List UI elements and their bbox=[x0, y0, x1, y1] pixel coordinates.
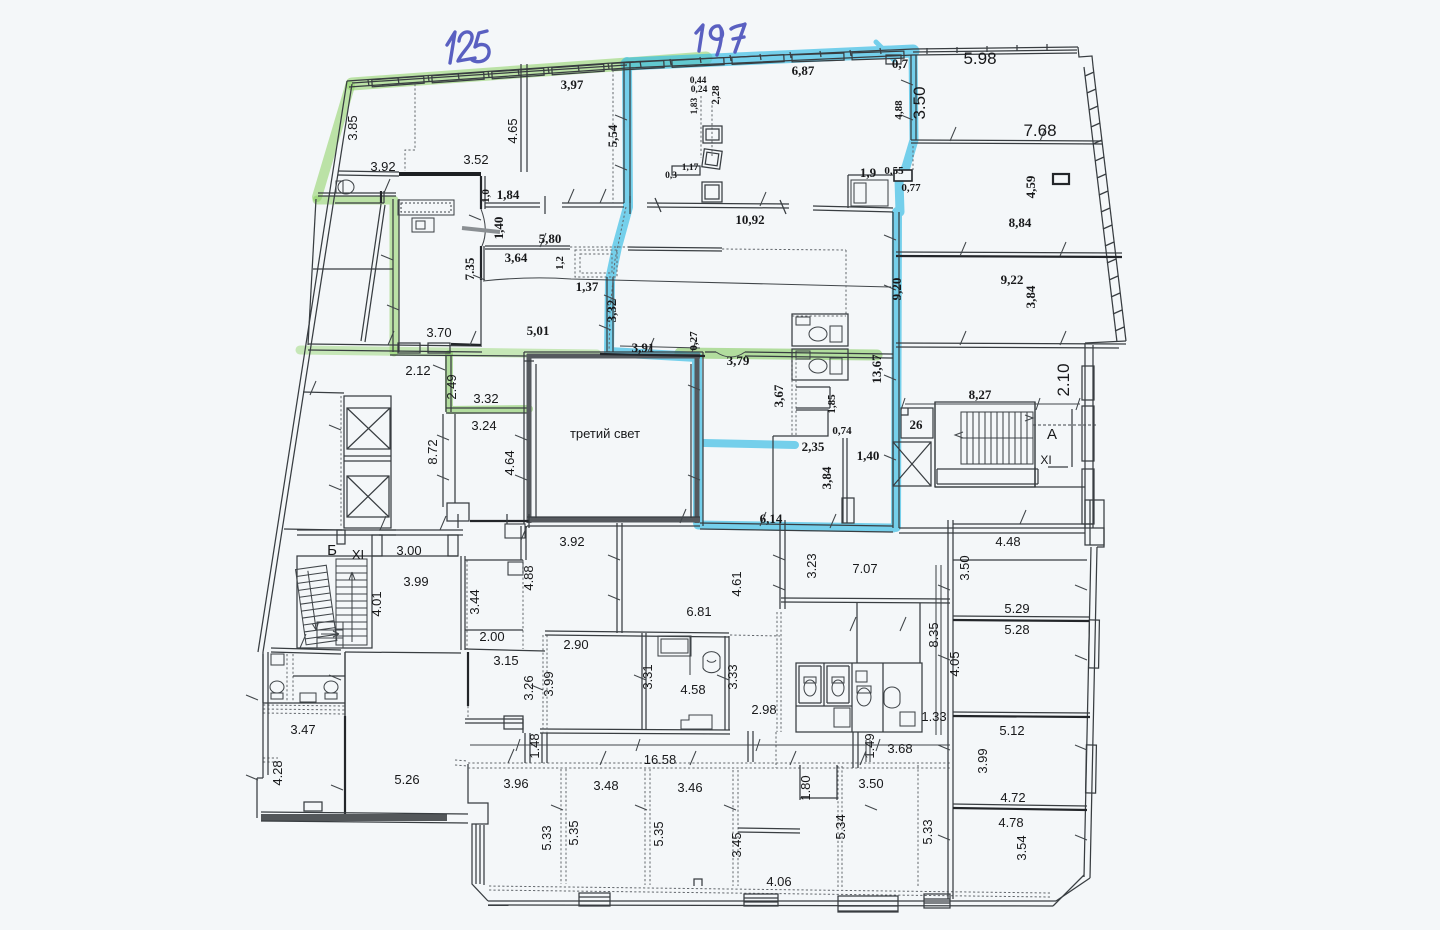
svg-text:5,01: 5,01 bbox=[527, 323, 550, 338]
svg-text:8.35: 8.35 bbox=[926, 622, 941, 647]
svg-text:3,67: 3,67 bbox=[771, 384, 786, 407]
svg-text:0,7: 0,7 bbox=[892, 56, 909, 71]
svg-text:3.85: 3.85 bbox=[345, 115, 360, 140]
svg-text:4,59: 4,59 bbox=[1023, 175, 1038, 198]
svg-text:А: А bbox=[1047, 426, 1057, 443]
svg-text:4.28: 4.28 bbox=[270, 760, 285, 785]
svg-text:2.12: 2.12 bbox=[405, 363, 430, 378]
svg-text:4.88: 4.88 bbox=[521, 565, 536, 590]
svg-text:1,84: 1,84 bbox=[497, 187, 520, 202]
svg-text:5.33: 5.33 bbox=[920, 819, 935, 844]
svg-text:8.72: 8.72 bbox=[425, 439, 440, 464]
svg-text:0,74: 0,74 bbox=[832, 425, 852, 437]
svg-text:1,9: 1,9 bbox=[860, 165, 877, 180]
svg-text:XI: XI bbox=[352, 547, 364, 562]
svg-text:3.26: 3.26 bbox=[521, 675, 536, 700]
svg-text:5.29: 5.29 bbox=[1004, 601, 1029, 616]
svg-text:26: 26 bbox=[910, 417, 924, 432]
svg-text:4,88: 4,88 bbox=[893, 100, 905, 120]
svg-text:3.50: 3.50 bbox=[957, 555, 972, 580]
svg-text:1,83: 1,83 bbox=[690, 97, 700, 114]
svg-text:7.35: 7.35 bbox=[462, 257, 477, 280]
svg-text:6,87: 6,87 bbox=[792, 63, 815, 78]
svg-text:5.98: 5.98 bbox=[963, 49, 996, 68]
svg-text:4.64: 4.64 bbox=[502, 450, 517, 475]
svg-text:0,3: 0,3 bbox=[665, 171, 677, 181]
svg-text:3.54: 3.54 bbox=[1014, 835, 1029, 860]
svg-text:2.98: 2.98 bbox=[751, 702, 776, 717]
svg-text:3.15: 3.15 bbox=[493, 653, 518, 668]
svg-text:5.34: 5.34 bbox=[833, 814, 848, 839]
svg-text:5,80: 5,80 bbox=[539, 231, 562, 246]
svg-text:7.68: 7.68 bbox=[1023, 121, 1056, 140]
svg-text:1,17: 1,17 bbox=[682, 163, 699, 173]
svg-text:1,40: 1,40 bbox=[857, 448, 880, 463]
svg-text:2,28: 2,28 bbox=[710, 85, 722, 105]
svg-text:1.48: 1.48 bbox=[527, 733, 542, 758]
svg-text:3.31: 3.31 bbox=[640, 664, 655, 689]
svg-text:3,97: 3,97 bbox=[561, 77, 584, 92]
svg-text:3.24: 3.24 bbox=[471, 418, 496, 433]
svg-text:3,64: 3,64 bbox=[505, 250, 528, 265]
svg-text:5.26: 5.26 bbox=[394, 772, 419, 787]
svg-text:4.72: 4.72 bbox=[1000, 790, 1025, 805]
svg-text:9,20: 9,20 bbox=[889, 278, 904, 301]
svg-text:3.00: 3.00 bbox=[396, 543, 421, 558]
svg-text:8,84: 8,84 bbox=[1009, 215, 1032, 230]
svg-text:1,85: 1,85 bbox=[826, 394, 838, 414]
svg-text:3.92: 3.92 bbox=[370, 159, 395, 174]
svg-text:1.80: 1.80 bbox=[798, 775, 813, 800]
svg-text:2.49: 2.49 bbox=[444, 374, 459, 399]
svg-text:1,2: 1,2 bbox=[554, 256, 566, 270]
svg-text:3.92: 3.92 bbox=[559, 534, 584, 549]
svg-text:1.33: 1.33 bbox=[921, 709, 946, 724]
svg-text:4.61: 4.61 bbox=[729, 571, 744, 596]
svg-text:XI: XI bbox=[1040, 453, 1051, 467]
svg-text:3.70: 3.70 bbox=[426, 325, 451, 340]
svg-text:2.10: 2.10 bbox=[1054, 363, 1073, 396]
svg-text:8,27: 8,27 bbox=[969, 387, 992, 402]
svg-text:3.47: 3.47 bbox=[290, 722, 315, 737]
svg-text:6.81: 6.81 bbox=[686, 604, 711, 619]
svg-text:0,55: 0,55 bbox=[884, 165, 904, 177]
svg-text:3.44: 3.44 bbox=[467, 589, 482, 614]
svg-text:3.68: 3.68 bbox=[887, 741, 912, 756]
svg-text:3.96: 3.96 bbox=[503, 776, 528, 791]
svg-text:2,35: 2,35 bbox=[802, 439, 825, 454]
svg-text:9,22: 9,22 bbox=[1001, 272, 1024, 287]
svg-text:3.45: 3.45 bbox=[729, 832, 744, 857]
svg-text:3,84: 3,84 bbox=[819, 466, 834, 489]
svg-text:Б: Б bbox=[327, 542, 337, 559]
svg-text:0,24: 0,24 bbox=[691, 85, 708, 95]
svg-text:третий свет: третий свет bbox=[570, 426, 640, 441]
svg-text:3.50: 3.50 bbox=[910, 86, 929, 119]
svg-text:4.01: 4.01 bbox=[369, 591, 384, 616]
svg-text:0,77: 0,77 bbox=[901, 182, 921, 194]
svg-text:3.99: 3.99 bbox=[975, 748, 990, 773]
svg-text:3.48: 3.48 bbox=[593, 778, 618, 793]
svg-text:1,37: 1,37 bbox=[576, 279, 599, 294]
svg-text:1,40: 1,40 bbox=[491, 217, 506, 240]
svg-text:16.58: 16.58 bbox=[644, 752, 677, 767]
svg-text:3.32: 3.32 bbox=[473, 391, 498, 406]
svg-text:3.50: 3.50 bbox=[858, 776, 883, 791]
svg-text:4.06: 4.06 bbox=[766, 874, 791, 889]
svg-text:3.23: 3.23 bbox=[804, 553, 819, 578]
svg-text:3.99: 3.99 bbox=[541, 671, 556, 696]
svg-text:4.78: 4.78 bbox=[998, 815, 1023, 830]
svg-text:3,79: 3,79 bbox=[727, 353, 750, 368]
svg-text:7.07: 7.07 bbox=[852, 561, 877, 576]
svg-text:4.65: 4.65 bbox=[505, 118, 520, 143]
svg-text:0,27: 0,27 bbox=[688, 331, 700, 351]
svg-text:5.12: 5.12 bbox=[999, 723, 1024, 738]
svg-text:4.58: 4.58 bbox=[680, 682, 705, 697]
svg-text:3.52: 3.52 bbox=[463, 152, 488, 167]
svg-text:5,54: 5,54 bbox=[605, 124, 620, 147]
svg-text:10,92: 10,92 bbox=[735, 212, 764, 227]
svg-text:2.00: 2.00 bbox=[479, 629, 504, 644]
svg-text:4.05: 4.05 bbox=[947, 651, 962, 676]
svg-text:4.48: 4.48 bbox=[995, 534, 1020, 549]
svg-text:5.35: 5.35 bbox=[566, 820, 581, 845]
svg-text:3.99: 3.99 bbox=[403, 574, 428, 589]
svg-text:5.33: 5.33 bbox=[539, 825, 554, 850]
svg-text:3,32: 3,32 bbox=[604, 300, 619, 323]
svg-text:3,84: 3,84 bbox=[1023, 285, 1038, 308]
svg-text:1,0: 1,0 bbox=[480, 189, 492, 203]
svg-text:13,67: 13,67 bbox=[869, 354, 884, 384]
svg-text:2.90: 2.90 bbox=[563, 637, 588, 652]
svg-text:3.46: 3.46 bbox=[677, 780, 702, 795]
svg-text:5.35: 5.35 bbox=[651, 821, 666, 846]
svg-text:5.28: 5.28 bbox=[1004, 622, 1029, 637]
svg-text:3.33: 3.33 bbox=[725, 664, 740, 689]
svg-text:3,91: 3,91 bbox=[632, 340, 655, 355]
svg-text:6,14: 6,14 bbox=[760, 511, 783, 526]
